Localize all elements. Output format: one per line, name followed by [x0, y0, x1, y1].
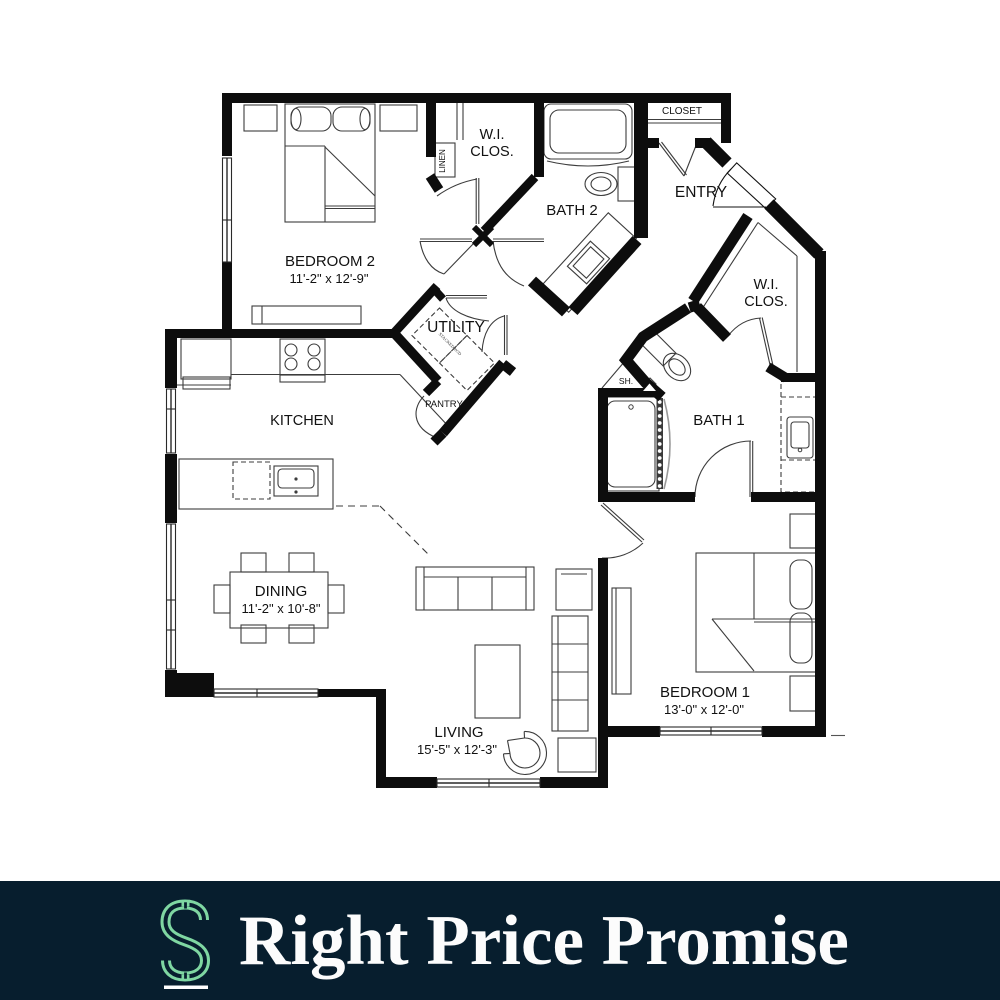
svg-text:W.I.: W.I.: [754, 277, 779, 293]
svg-text:LIVING: LIVING: [434, 724, 483, 741]
svg-text:13'-0" x 12'-0": 13'-0" x 12'-0": [664, 702, 744, 717]
svg-text:DINING: DINING: [255, 583, 308, 600]
svg-text:LINEN: LINEN: [438, 149, 447, 173]
svg-text:KITCHEN: KITCHEN: [270, 413, 334, 429]
svg-text:UTILITY: UTILITY: [427, 319, 485, 336]
svg-text:SH.: SH.: [619, 376, 633, 386]
svg-text:15'-5" x 12'-3": 15'-5" x 12'-3": [417, 742, 497, 757]
svg-text:CLOS.: CLOS.: [744, 294, 788, 310]
svg-text:BATH 1: BATH 1: [693, 412, 744, 429]
svg-text:CLOS.: CLOS.: [470, 144, 514, 160]
svg-text:11'-2" x 10'-8": 11'-2" x 10'-8": [242, 601, 321, 616]
svg-text:W.I.: W.I.: [480, 127, 505, 143]
svg-text:BEDROOM 2: BEDROOM 2: [285, 253, 375, 270]
svg-text:PANTRY: PANTRY: [425, 399, 463, 410]
svg-text:BATH 2: BATH 2: [546, 202, 597, 219]
svg-text:Right Price Promise: Right Price Promise: [239, 902, 849, 980]
svg-text:BEDROOM 1: BEDROOM 1: [660, 684, 750, 701]
svg-text:11'-2" x 12'-9": 11'-2" x 12'-9": [290, 271, 369, 286]
svg-text:CLOSET: CLOSET: [662, 106, 702, 117]
svg-text:ENTRY: ENTRY: [675, 184, 727, 201]
